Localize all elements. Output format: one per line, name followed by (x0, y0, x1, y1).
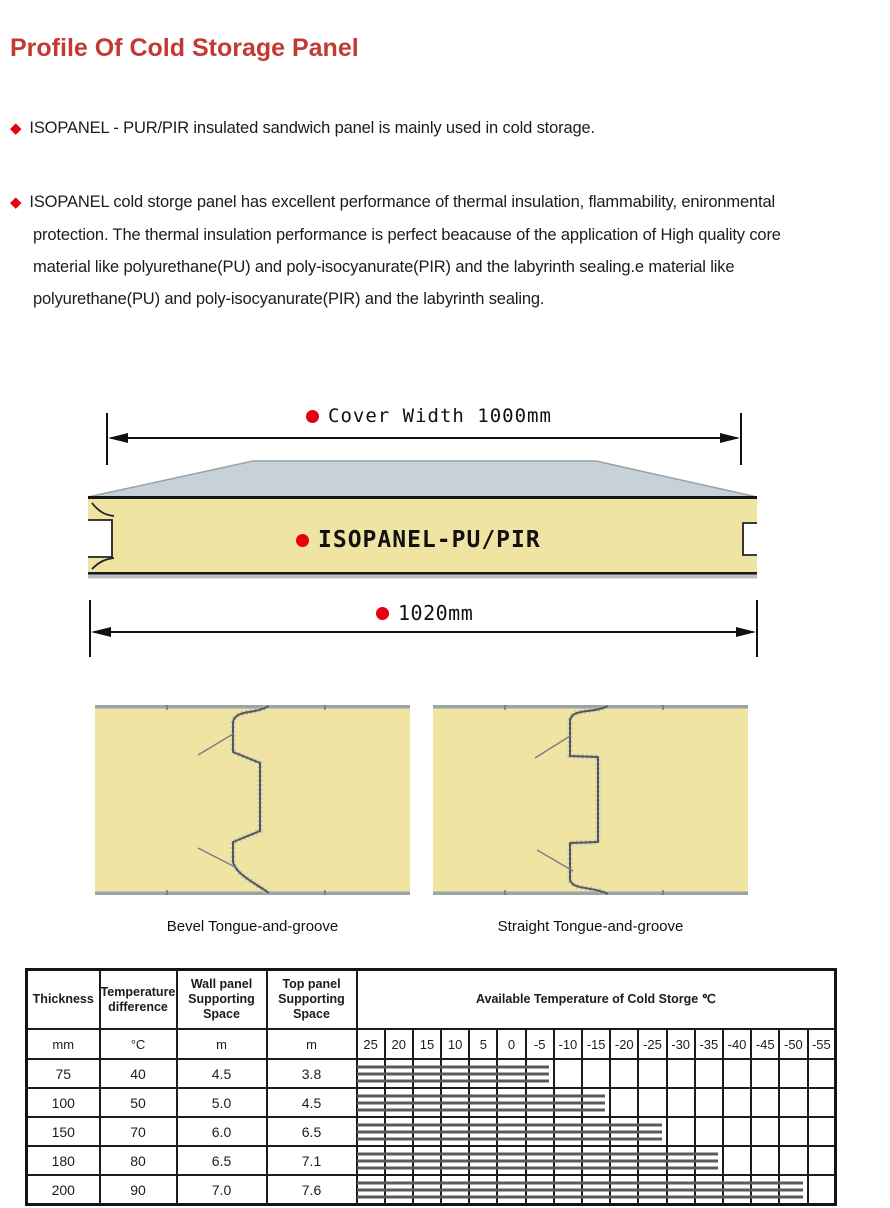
temp-column-header: 15 (413, 1029, 441, 1059)
temp-column-header: 5 (469, 1029, 497, 1059)
table-row: 75404.53.8 (27, 1059, 836, 1088)
top-span-value: 7.6 (267, 1175, 357, 1205)
temp-range-cell (497, 1059, 525, 1088)
temp-range-cell (385, 1059, 413, 1088)
temp-range-cell (751, 1059, 779, 1088)
temp-range-cell (526, 1088, 554, 1117)
red-dot-icon (306, 410, 319, 423)
temp-range-cell (723, 1146, 751, 1175)
temp-range-cell (610, 1175, 638, 1205)
temp-range-cell (582, 1059, 610, 1088)
arrow-right-icon (720, 433, 740, 443)
bullet-text: ISOPANEL - PUR/PIR insulated sandwich pa… (29, 119, 595, 137)
temp-range-cell (357, 1059, 385, 1088)
temp-range-cell (497, 1088, 525, 1117)
red-dot-icon (376, 607, 389, 620)
figure-caption-bevel: Bevel Tongue-and-groove (95, 918, 410, 935)
header-temperature-difference: Temperature difference (100, 970, 177, 1030)
temp-column-header: 25 (357, 1029, 385, 1059)
temp-range-cell (808, 1175, 836, 1205)
temp-range-cell (526, 1146, 554, 1175)
temp-difference-value: 40 (100, 1059, 177, 1088)
thickness-value: 100 (27, 1088, 100, 1117)
temp-range-cell (610, 1117, 638, 1146)
top-span-value: 6.5 (267, 1117, 357, 1146)
overall-width-text: 1020mm (398, 601, 473, 625)
temp-range-cell (469, 1175, 497, 1205)
thickness-value: 200 (27, 1175, 100, 1205)
unit-mm: mm (27, 1029, 100, 1059)
groove-edge (88, 520, 112, 557)
bullet-item-1: ◆ISOPANEL - PUR/PIR insulated sandwich p… (10, 119, 595, 138)
figure-background (433, 705, 748, 895)
temp-range-cell (497, 1146, 525, 1175)
temp-range-cell (779, 1117, 807, 1146)
wall-span-value: 6.5 (177, 1146, 267, 1175)
cover-width-text: Cover Width 1000mm (328, 405, 552, 427)
bottom-sheet (88, 575, 757, 579)
header-wall-panel-span: Wall panel Supporting Space (177, 970, 267, 1030)
temp-column-header: -20 (610, 1029, 638, 1059)
temp-column-header: -25 (638, 1029, 666, 1059)
temp-range-cell (385, 1146, 413, 1175)
header-available-temperature: Available Temperature of Cold Storge ℃ (357, 970, 836, 1030)
temp-column-header: -15 (582, 1029, 610, 1059)
temp-column-header: -35 (695, 1029, 723, 1059)
temp-range-cell (638, 1175, 666, 1205)
temp-range-cell (723, 1117, 751, 1146)
table-row: 100505.04.5 (27, 1088, 836, 1117)
cover-width-label: Cover Width 1000mm (306, 405, 552, 427)
overall-width-label: 1020mm (376, 601, 473, 625)
temp-range-cell (808, 1088, 836, 1117)
temp-range-cell (469, 1088, 497, 1117)
temp-range-cell (497, 1117, 525, 1146)
temp-column-header: -30 (667, 1029, 695, 1059)
bullet-item-2: ◆ISOPANEL cold storge panel has excellen… (10, 186, 781, 315)
temp-range-cell (695, 1146, 723, 1175)
temp-range-cell (723, 1175, 751, 1205)
temp-range-cell (385, 1117, 413, 1146)
unit-m-top: m (267, 1029, 357, 1059)
temp-range-cell (441, 1175, 469, 1205)
temp-range-cell (357, 1175, 385, 1205)
temp-range-cell (441, 1059, 469, 1088)
temp-range-cell (751, 1175, 779, 1205)
temp-range-cell (667, 1059, 695, 1088)
temp-range-cell (695, 1175, 723, 1205)
temp-range-cell (667, 1117, 695, 1146)
temp-range-cell (751, 1088, 779, 1117)
temp-range-cell (441, 1117, 469, 1146)
temp-range-cell (497, 1175, 525, 1205)
header-thickness: Thickness (27, 970, 100, 1030)
temp-range-cell (582, 1088, 610, 1117)
temp-range-cell (554, 1059, 582, 1088)
temp-range-cell (413, 1175, 441, 1205)
temp-range-cell (808, 1117, 836, 1146)
temp-range-cell (357, 1146, 385, 1175)
wall-span-value: 6.0 (177, 1117, 267, 1146)
top-sheet-strip (95, 705, 410, 709)
figure-caption-straight: Straight Tongue-and-groove (433, 918, 748, 935)
temp-column-header: 0 (497, 1029, 525, 1059)
temp-range-cell (808, 1146, 836, 1175)
temp-range-cell (610, 1088, 638, 1117)
temp-column-header: -40 (723, 1029, 751, 1059)
diamond-bullet-icon: ◆ (10, 120, 21, 137)
arrow-right-icon (736, 627, 756, 637)
temp-range-cell (385, 1175, 413, 1205)
table-header-row: Thickness Temperature difference Wall pa… (27, 970, 836, 1030)
temp-range-cell (723, 1059, 751, 1088)
tongue-edge (743, 523, 757, 555)
temp-column-header: 20 (385, 1029, 413, 1059)
temp-difference-value: 80 (100, 1146, 177, 1175)
temp-range-cell (441, 1088, 469, 1117)
temp-range-cell (638, 1146, 666, 1175)
wall-span-value: 7.0 (177, 1175, 267, 1205)
top-span-value: 3.8 (267, 1059, 357, 1088)
temp-range-cell (779, 1146, 807, 1175)
bullet-text-line: material like polyurethane(PU) and poly-… (10, 251, 781, 283)
figure-background (95, 705, 410, 895)
bottom-sheet-strip (433, 892, 748, 896)
bottom-sheet-edge (88, 572, 757, 575)
thickness-value: 75 (27, 1059, 100, 1088)
temp-range-cell (779, 1059, 807, 1088)
sheet-edge-line (88, 496, 757, 499)
temp-range-cell (638, 1059, 666, 1088)
temp-range-cell (357, 1117, 385, 1146)
temp-range-cell (441, 1146, 469, 1175)
temp-column-header: -55 (808, 1029, 836, 1059)
bullet-text-line: protection. The thermal insulation perfo… (10, 219, 781, 251)
temp-range-cell (695, 1059, 723, 1088)
bullet-text-line: polyurethane(PU) and poly-isocyanurate(P… (10, 283, 781, 315)
wall-span-value: 4.5 (177, 1059, 267, 1088)
spec-table: Thickness Temperature difference Wall pa… (25, 968, 837, 1206)
unit-m-wall: m (177, 1029, 267, 1059)
temp-range-cell (582, 1175, 610, 1205)
temp-range-cell (779, 1175, 807, 1205)
top-span-value: 4.5 (267, 1088, 357, 1117)
temp-column-header: -50 (779, 1029, 807, 1059)
panel-name-label: ISOPANEL-PU/PIR (296, 527, 541, 553)
temp-range-cell (526, 1117, 554, 1146)
temp-range-cell (413, 1059, 441, 1088)
diamond-bullet-icon: ◆ (10, 194, 21, 211)
table-row: 200907.07.6 (27, 1175, 836, 1205)
temp-range-cell (667, 1146, 695, 1175)
temp-range-cell (413, 1088, 441, 1117)
table-row: 180806.57.1 (27, 1146, 836, 1175)
bevel-tongue-groove-figure (95, 705, 410, 895)
temp-range-cell (582, 1146, 610, 1175)
temp-range-cell (610, 1146, 638, 1175)
page: Profile Of Cold Storage Panel ◆ISOPANEL … (0, 0, 890, 1208)
temp-difference-value: 70 (100, 1117, 177, 1146)
temp-range-cell (695, 1117, 723, 1146)
temp-range-cell (554, 1175, 582, 1205)
temp-range-cell (667, 1088, 695, 1117)
temp-range-cell (638, 1088, 666, 1117)
temp-difference-value: 90 (100, 1175, 177, 1205)
temp-range-cell (808, 1059, 836, 1088)
bottom-sheet-strip (95, 892, 410, 896)
temp-range-cell (554, 1146, 582, 1175)
temp-range-cell (413, 1146, 441, 1175)
top-sheet (88, 461, 757, 497)
temp-range-cell (723, 1088, 751, 1117)
temp-range-cell (526, 1059, 554, 1088)
page-title: Profile Of Cold Storage Panel (10, 34, 359, 63)
temp-range-cell (779, 1088, 807, 1117)
arrow-left-icon (91, 627, 111, 637)
temp-range-cell (751, 1117, 779, 1146)
temp-range-cell (695, 1088, 723, 1117)
arrow-left-icon (108, 433, 128, 443)
temp-range-cell (469, 1117, 497, 1146)
temp-range-cell (413, 1117, 441, 1146)
temp-range-cell (526, 1175, 554, 1205)
temp-difference-value: 50 (100, 1088, 177, 1117)
temp-column-header: -5 (526, 1029, 554, 1059)
top-sheet-strip (433, 705, 748, 709)
temp-range-cell (751, 1146, 779, 1175)
temp-column-header: -45 (751, 1029, 779, 1059)
temp-range-cell (610, 1059, 638, 1088)
temp-range-cell (469, 1059, 497, 1088)
thickness-value: 150 (27, 1117, 100, 1146)
temp-column-header: 10 (441, 1029, 469, 1059)
thickness-value: 180 (27, 1146, 100, 1175)
top-span-value: 7.1 (267, 1146, 357, 1175)
temp-range-cell (638, 1117, 666, 1146)
units-row: mm °C m m 2520151050-5-10-15-20-25-30-35… (27, 1029, 836, 1059)
red-dot-icon (296, 534, 309, 547)
temp-range-cell (469, 1146, 497, 1175)
specification-table: Thickness Temperature difference Wall pa… (25, 968, 837, 1206)
temp-range-cell (582, 1117, 610, 1146)
temp-column-header: -10 (554, 1029, 582, 1059)
straight-tongue-groove-figure (433, 705, 748, 895)
header-top-panel-span: Top panel Supporting Space (267, 970, 357, 1030)
temp-range-cell (357, 1088, 385, 1117)
temp-range-cell (667, 1175, 695, 1205)
panel-name-text: ISOPANEL-PU/PIR (318, 527, 541, 553)
wall-span-value: 5.0 (177, 1088, 267, 1117)
temp-range-cell (385, 1088, 413, 1117)
unit-celsius: °C (100, 1029, 177, 1059)
temp-range-cell (554, 1088, 582, 1117)
table-row: 150706.06.5 (27, 1117, 836, 1146)
bullet-text-line: ISOPANEL cold storge panel has excellent… (29, 193, 775, 211)
temp-range-cell (554, 1117, 582, 1146)
